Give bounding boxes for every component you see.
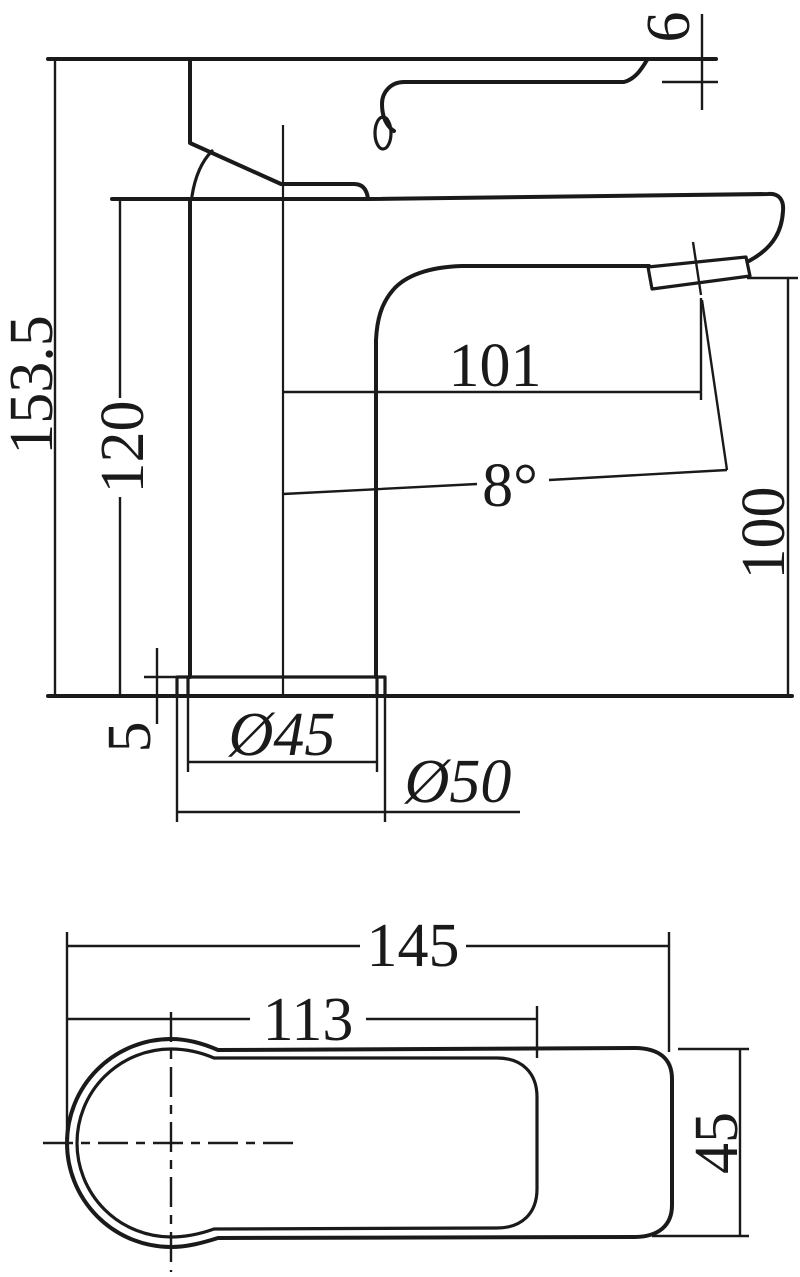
lever-pivot-detail bbox=[375, 117, 391, 149]
top-view: 145 113 45 bbox=[43, 912, 751, 1272]
spout-top-outline bbox=[112, 194, 783, 261]
drawing-sheet: 153.5 120 6 101 8° 100 5 Ø45 Ø50 bbox=[0, 0, 800, 1277]
lever-tip-dim-label: 6 bbox=[635, 12, 703, 43]
lever-underside bbox=[382, 60, 647, 131]
base-plate-outer bbox=[177, 677, 385, 696]
base-thickness-dim-label: 5 bbox=[96, 722, 164, 753]
spout-reach-dim-label: 101 bbox=[449, 332, 542, 400]
body-length-dim-label: 113 bbox=[263, 986, 354, 1054]
outlet-height-dim-label: 100 bbox=[730, 487, 798, 580]
base-thickness-dim-line bbox=[144, 648, 178, 724]
body-height-dim-label: 120 bbox=[89, 401, 157, 494]
base-inner-dia-dim-label: Ø45 bbox=[228, 701, 336, 769]
aerator-axis-line bbox=[693, 242, 727, 470]
overall-length-dim-label: 145 bbox=[367, 912, 460, 980]
base-outer-dia-dim-label: Ø50 bbox=[404, 748, 512, 816]
body-width-dim-label: 45 bbox=[683, 1112, 751, 1174]
plan-inner-outline bbox=[77, 1049, 537, 1237]
side-view: 153.5 120 6 101 8° 100 5 Ø45 Ø50 bbox=[0, 12, 798, 823]
handle-base-outline bbox=[190, 59, 368, 199]
spout-angle-dim-label: 8° bbox=[482, 452, 538, 520]
handle-front-arc bbox=[192, 151, 212, 196]
overall-height-dim-label: 153.5 bbox=[0, 315, 66, 455]
technical-drawing: 153.5 120 6 101 8° 100 5 Ø45 Ø50 bbox=[0, 0, 800, 1277]
